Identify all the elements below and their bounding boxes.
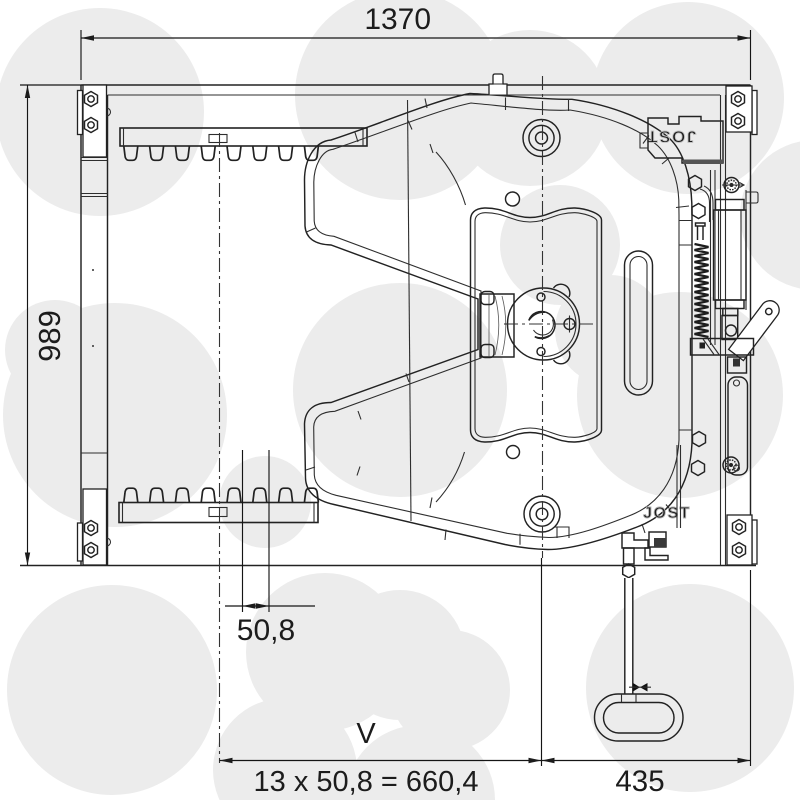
- svg-text:V: V: [356, 718, 376, 750]
- svg-text:13 x 50,8 = 660,4: 13 x 50,8 = 660,4: [254, 766, 479, 798]
- svg-text:JOST: JOST: [643, 505, 691, 522]
- svg-text:989: 989: [32, 310, 67, 362]
- svg-text:435: 435: [615, 765, 664, 798]
- svg-text:JOST: JOST: [646, 127, 696, 146]
- svg-text:1370: 1370: [364, 3, 431, 36]
- svg-text:50,8: 50,8: [237, 614, 295, 647]
